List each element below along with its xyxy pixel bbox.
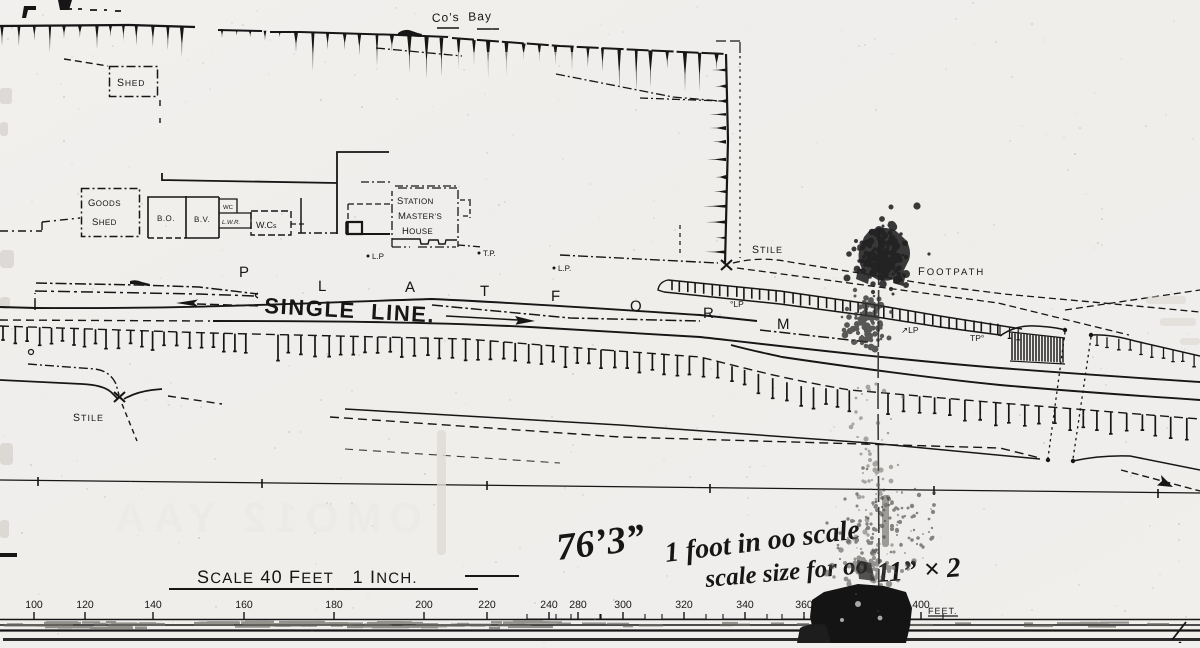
svg-text:220: 220 [478, 599, 496, 611]
svg-text:O: O [630, 298, 642, 315]
svg-text:T: T [480, 283, 489, 300]
svg-text:240: 240 [540, 599, 558, 611]
svg-text:L.P: L.P [372, 252, 384, 261]
svg-text:WC: WC [223, 204, 234, 211]
svg-text:200: 200 [415, 599, 433, 611]
svg-text:STILE: STILE [752, 244, 783, 256]
svg-text:SCALE 40 FEET 1 INCH.: SCALE 40 FEET 1 INCH. [197, 567, 418, 587]
svg-text:P: P [239, 264, 249, 281]
svg-text:GOODS: GOODS [88, 198, 121, 209]
svg-text:160: 160 [235, 599, 253, 611]
svg-text:180: 180 [325, 599, 343, 611]
svg-text:340: 340 [736, 599, 754, 611]
svg-text:MASTER’S: MASTER’S [398, 211, 442, 222]
svg-text:STATION: STATION [397, 196, 434, 207]
svg-text:M: M [777, 316, 790, 333]
svg-text:OMO12 YAA: OMO12 YAA [107, 494, 422, 541]
svg-text:SHED: SHED [92, 217, 117, 228]
svg-text:280: 280 [569, 599, 587, 611]
svg-text:B.V.: B.V. [194, 215, 210, 224]
svg-text:SHED: SHED [117, 77, 145, 89]
svg-text:Co’s Bay: Co’s Bay [432, 9, 493, 25]
svg-text:120: 120 [76, 599, 94, 611]
svg-text:TP°: TP° [970, 333, 984, 343]
svg-text:↗LP: ↗LP [901, 325, 919, 335]
svg-text:100: 100 [25, 599, 43, 611]
svg-text:L: L [318, 278, 326, 295]
svg-text:360: 360 [795, 599, 813, 611]
svg-text:FOOTPATH: FOOTPATH [918, 266, 985, 278]
svg-text:300: 300 [614, 599, 632, 611]
svg-text:B.O.: B.O. [157, 214, 175, 223]
svg-text:HOUSE: HOUSE [402, 226, 433, 237]
svg-text:T.P.: T.P. [483, 249, 496, 258]
svg-text:L.P.: L.P. [558, 264, 571, 273]
svg-text:L.W.R.: L.W.R. [222, 219, 240, 226]
svg-text:140: 140 [144, 599, 162, 611]
svg-text:F: F [551, 288, 560, 305]
svg-text:°LP: °LP [730, 299, 744, 309]
svg-text:STILE: STILE [73, 412, 104, 424]
svg-text:320: 320 [675, 599, 693, 611]
svg-text:R: R [703, 305, 714, 322]
svg-text:A: A [405, 279, 415, 296]
